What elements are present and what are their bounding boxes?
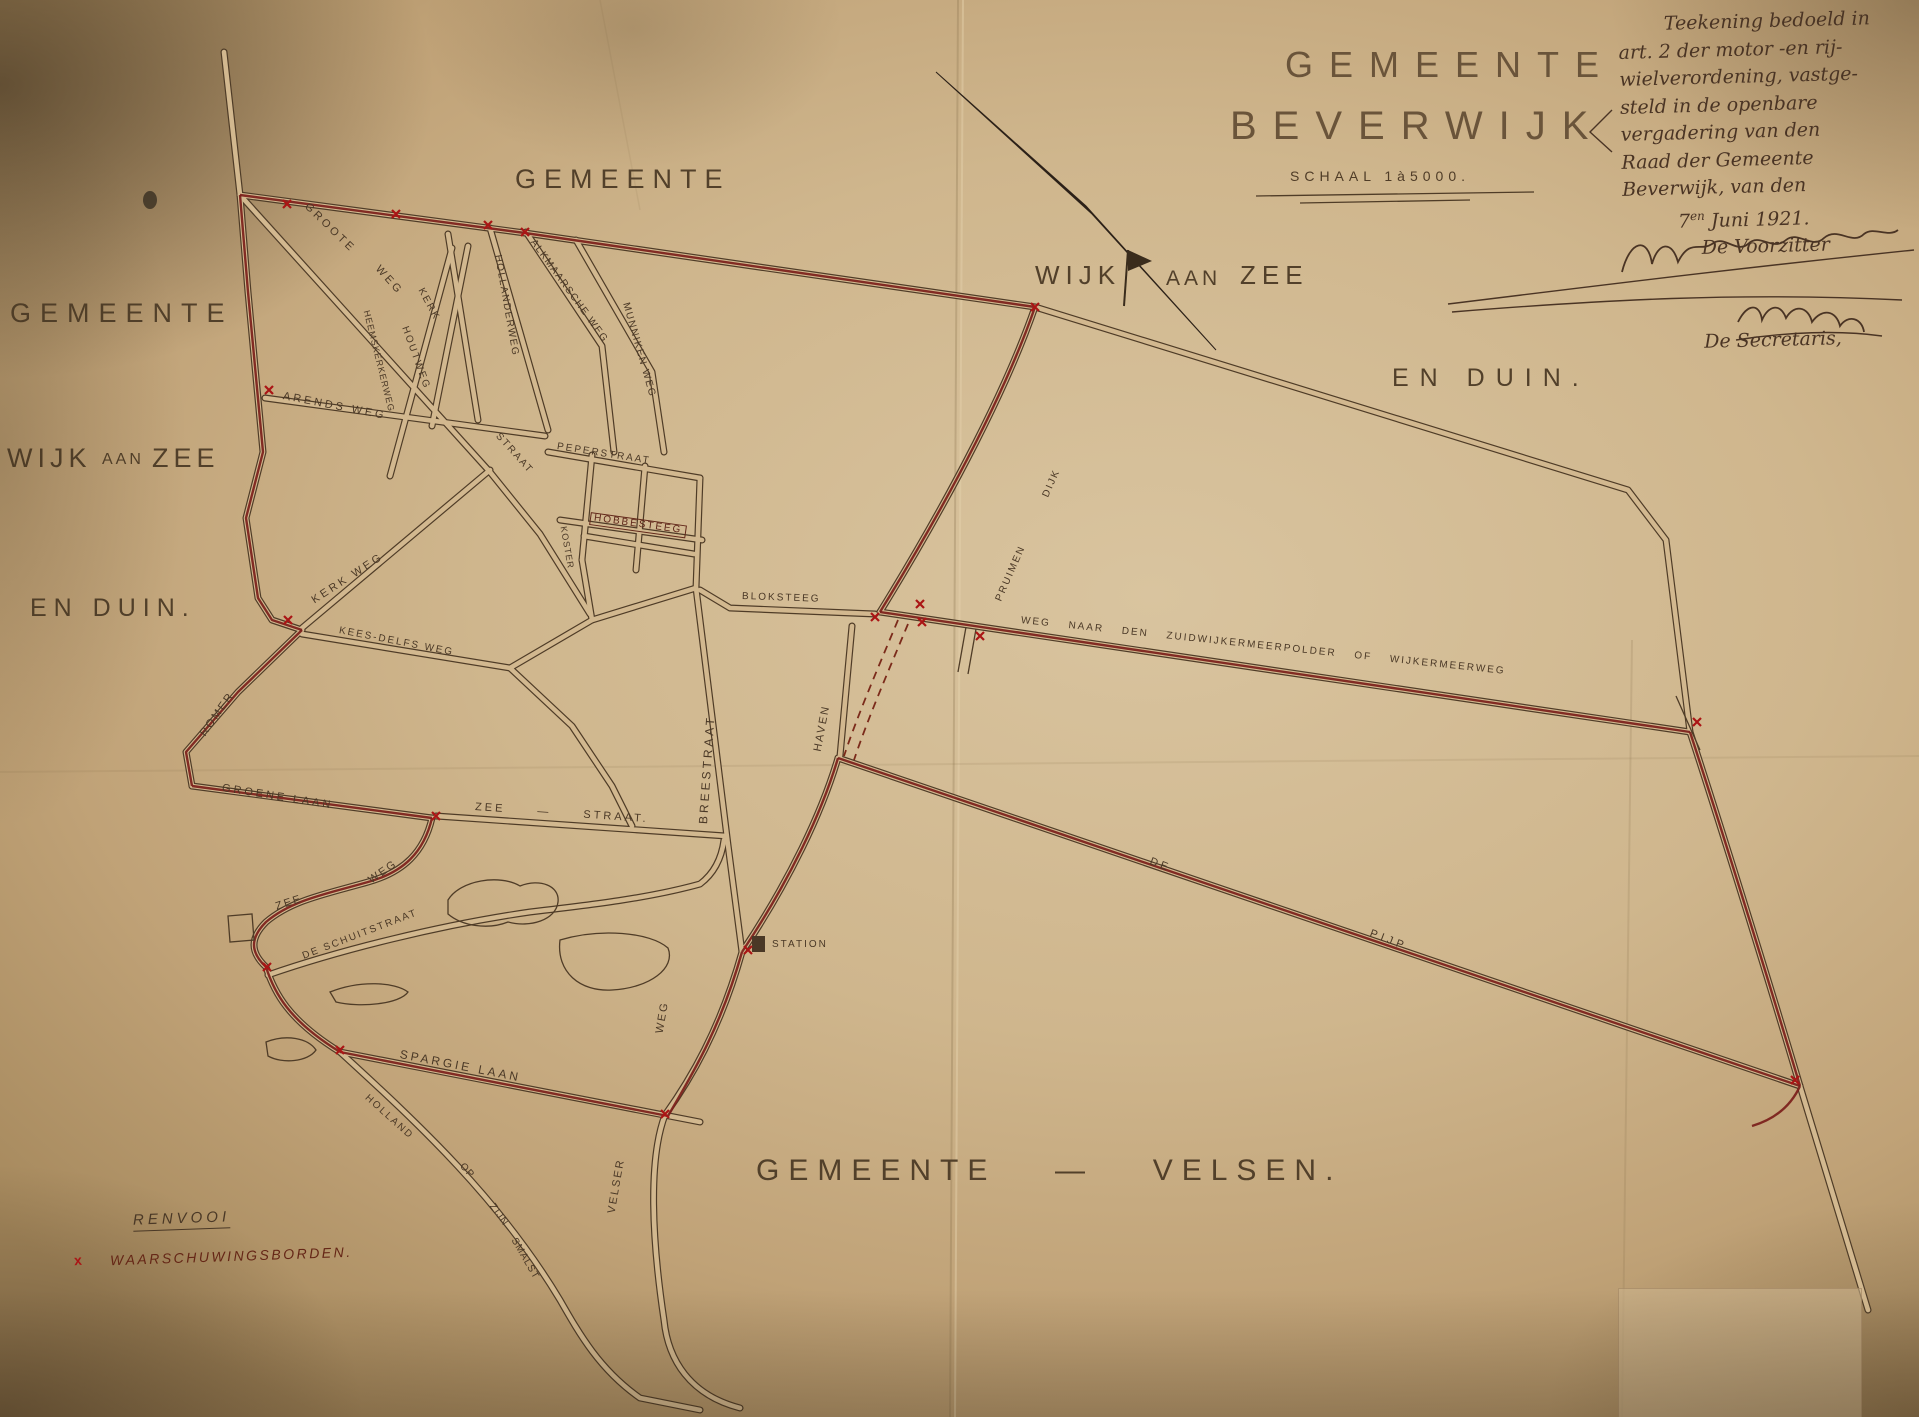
roads-inner: [186, 52, 1868, 1410]
roads-casing: [186, 52, 1868, 1410]
map-label-territory-zee-center: ZEE: [1240, 262, 1309, 288]
map-title-beverwijk: BEVERWIJK: [1230, 104, 1604, 149]
map-label-territory-wijk-center: WIJK: [1035, 262, 1121, 288]
map-label-territory-zee-left: ZEE: [152, 445, 220, 472]
tape-patch: [1618, 1288, 1862, 1417]
map-title-gemeente: GEMEENTE: [1285, 44, 1615, 86]
map-label-territory-en-duin-left: EN DUIN.: [30, 596, 196, 621]
map-label-territory-wijk-left: WIJK: [7, 445, 92, 472]
map-label-territory-en-duin-right: EN DUIN.: [1392, 366, 1590, 391]
warning-mark-icon: [976, 632, 984, 640]
map-scale: SCHAAL 1à5000.: [1290, 168, 1470, 184]
map-label-territory-aan-left: AAN: [102, 452, 144, 468]
map-label-territory-gemeente-top: GEMEENTE: [515, 166, 731, 193]
flag-icon: [1124, 250, 1152, 306]
legend-title: RENVOOI: [133, 1208, 231, 1231]
map-paper: GEMEENTEGEMEENTEWIJKAANZEEEN DUIN.WIJKAA…: [0, 0, 1919, 1417]
ordinance-note: Teekening bedoeld in art. 2 der motor -e…: [1618, 4, 1919, 358]
warning-mark-icon: [916, 600, 924, 608]
map-label-territory-gemeente-left: GEMEENTE: [10, 300, 234, 327]
warning-mark-icon: [265, 386, 273, 394]
map-label-territory-gemeente-velsen: GEMEENTE — VELSEN.: [756, 1156, 1342, 1186]
station-square: [752, 936, 765, 952]
warning-mark-icon: [1693, 718, 1701, 726]
map-label-territory-aan-center: AAN: [1166, 268, 1221, 289]
warning-marks-group: [263, 200, 1799, 1118]
map-label-poi-station: STATION: [772, 940, 828, 950]
warning-mark-icon: x: [73, 1252, 82, 1269]
wedge-mark-icon: [936, 72, 1216, 350]
signature-voorzitter-space: [1624, 257, 1919, 331]
